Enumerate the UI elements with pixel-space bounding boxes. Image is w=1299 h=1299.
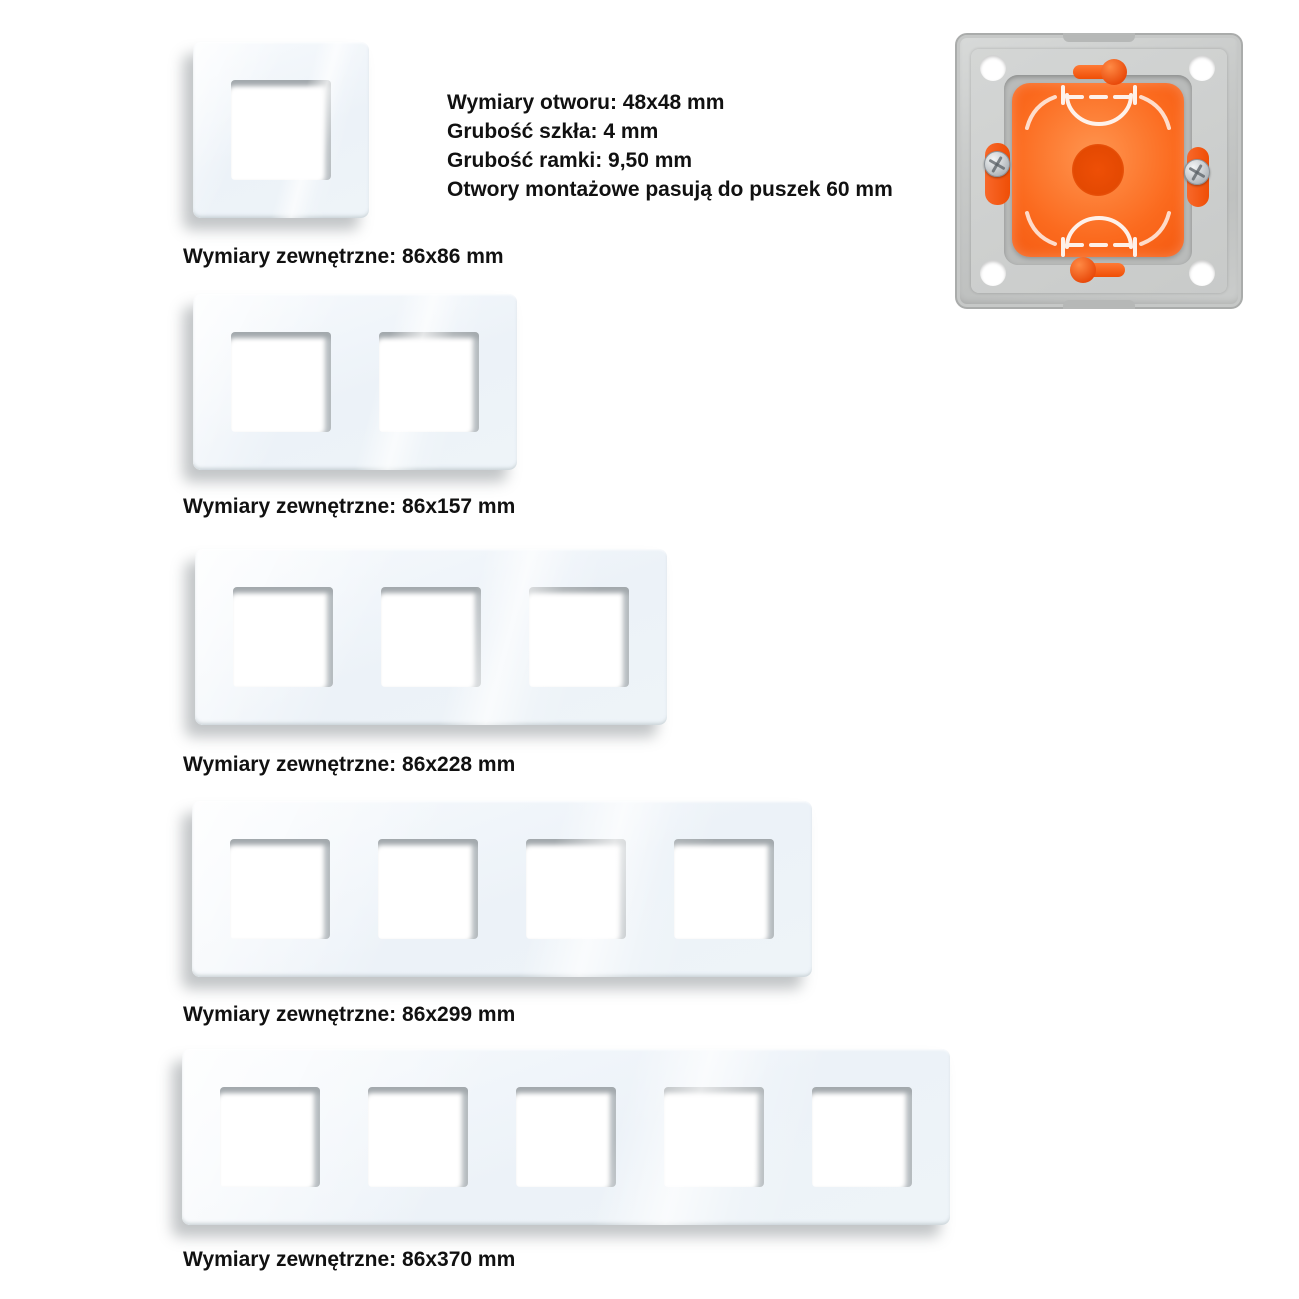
- module-cutout: [233, 587, 333, 687]
- module-cutout: [526, 839, 626, 939]
- frame-4gang-dimension-label: Wymiary zewnętrzne: 86x299 mm: [183, 1003, 515, 1027]
- bottom-clip-knob: [1070, 257, 1096, 283]
- right-screw-icon: [1184, 159, 1210, 185]
- module-cutout: [230, 839, 330, 939]
- frame-1gang-dimension-label: Wymiary zewnętrzne: 86x86 mm: [183, 245, 504, 269]
- frame-3gang-dimension-label: Wymiary zewnętrzne: 86x228 mm: [183, 753, 515, 777]
- screw-hole-bottom-left: [980, 260, 1006, 286]
- glass-frame-5gang: [182, 1049, 950, 1225]
- spec-line-hole-size: Wymiary otworu: 48x48 mm: [447, 88, 893, 117]
- top-clip-knob: [1101, 59, 1127, 85]
- module-cutout: [231, 80, 331, 180]
- mounting-box-image: [955, 33, 1243, 309]
- spec-line-glass-thickness: Grubość szkła: 4 mm: [447, 117, 893, 146]
- orange-insert-center-mark: [1072, 144, 1124, 196]
- module-cutout: [529, 587, 629, 687]
- glass-frame-1gang: [193, 42, 369, 218]
- spec-line-mounting-holes: Otwory montażowe pasują do puszek 60 mm: [447, 175, 893, 204]
- screw-hole-bottom-right: [1189, 260, 1215, 286]
- mounting-box-top-notch: [1063, 33, 1135, 42]
- glass-frame-2gang: [193, 294, 517, 470]
- spec-line-frame-thickness: Grubość ramki: 9,50 mm: [447, 146, 893, 175]
- glass-frame-4gang: [192, 801, 812, 977]
- module-cutout: [812, 1087, 912, 1187]
- module-cutout: [664, 1087, 764, 1187]
- module-cutout: [378, 839, 478, 939]
- frame-5gang-dimension-label: Wymiary zewnętrzne: 86x370 mm: [183, 1248, 515, 1272]
- left-screw-icon: [984, 151, 1010, 177]
- screw-hole-top-left: [980, 55, 1006, 81]
- mounting-box-bottom-notch: [1063, 300, 1135, 309]
- frame-2gang-dimension-label: Wymiary zewnętrzne: 86x157 mm: [183, 495, 515, 519]
- module-cutout: [516, 1087, 616, 1187]
- screw-hole-top-right: [1189, 55, 1215, 81]
- glass-frame-3gang: [195, 549, 667, 725]
- module-cutout: [368, 1087, 468, 1187]
- module-cutout: [381, 587, 481, 687]
- module-cutout: [674, 839, 774, 939]
- module-cutout: [220, 1087, 320, 1187]
- spec-text-block: Wymiary otworu: 48x48 mm Grubość szkła: …: [447, 88, 893, 204]
- module-cutout: [231, 332, 331, 432]
- module-cutout: [379, 332, 479, 432]
